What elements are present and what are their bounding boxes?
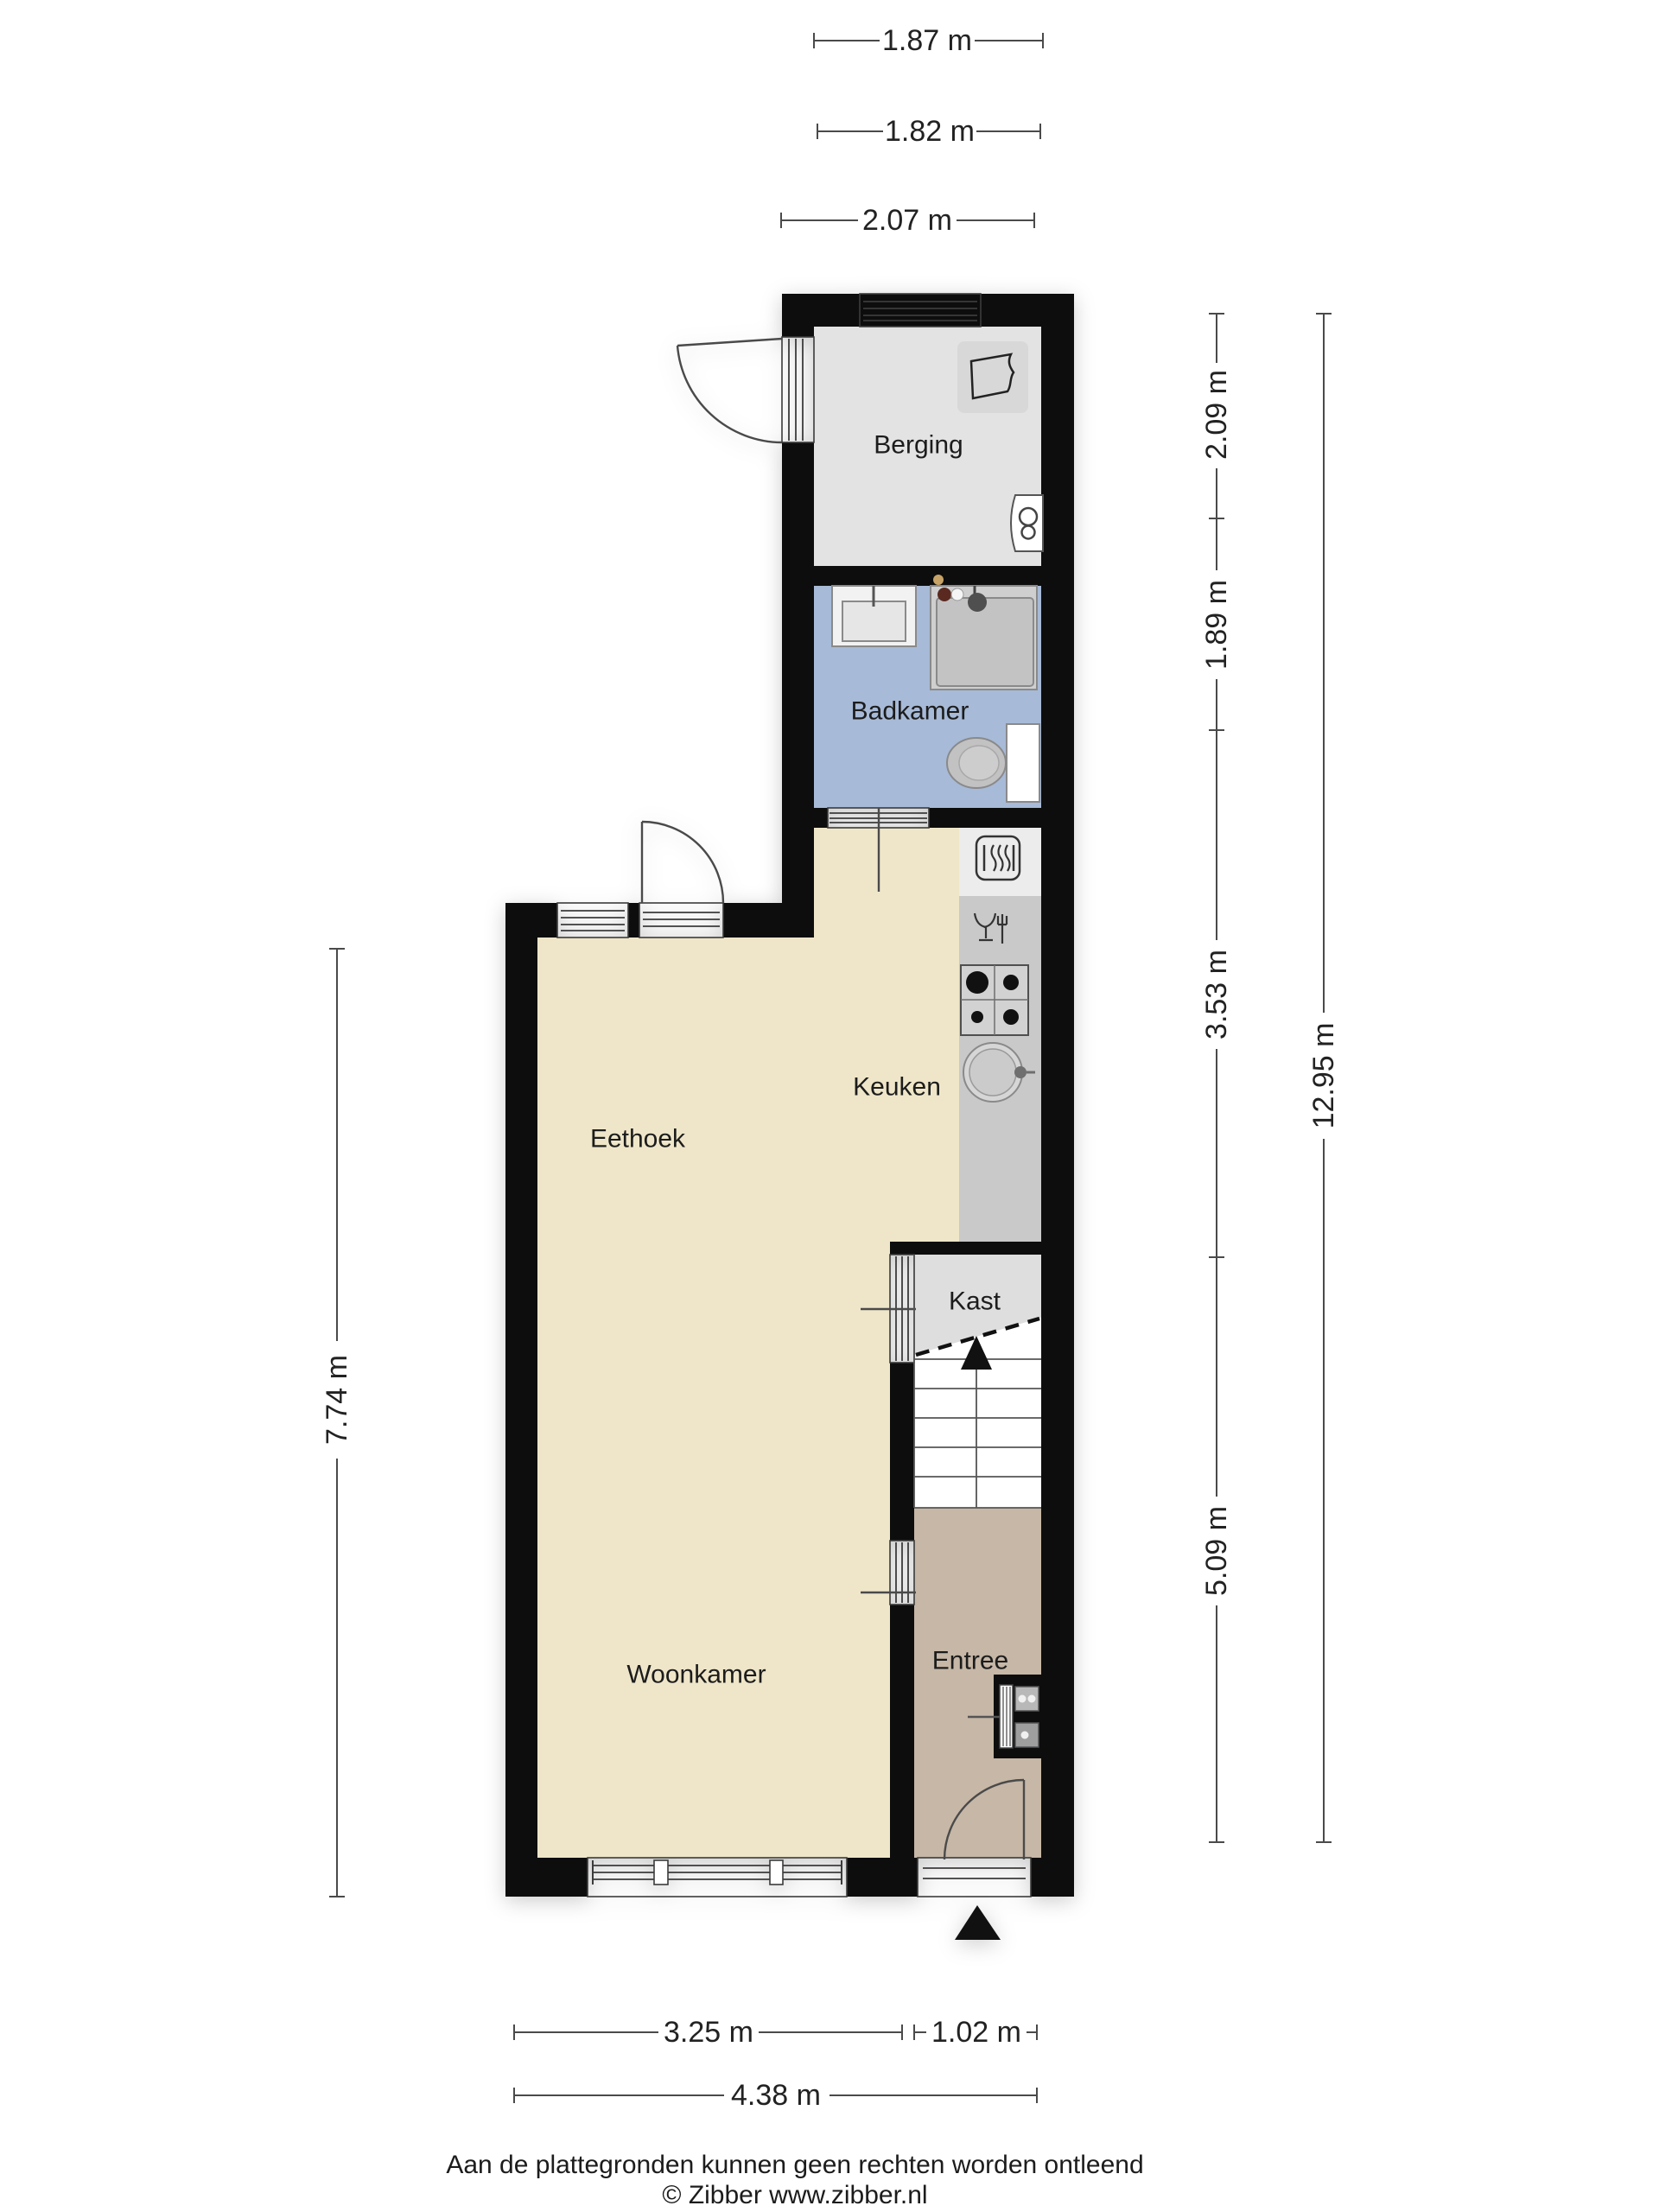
woonkamer-window: [588, 1858, 847, 1897]
room-label-eethoek: Eethoek: [590, 1125, 686, 1154]
dim-label: 4.38 m: [731, 2079, 821, 2112]
room-label-kast: Kast: [949, 1287, 1001, 1316]
garden-door: [639, 822, 723, 938]
kitchen-counter-top-section: [959, 828, 1041, 896]
footer: Aan de plattegronden kunnen geen rechten…: [446, 2151, 1143, 2209]
dim-bottom-1: 3.25 m: [514, 2016, 902, 2049]
room-label-entree: Entree: [932, 1647, 1008, 1675]
footer-credit: © Zibber www.zibber.nl: [662, 2181, 927, 2209]
footer-disclaimer: Aan de plattegronden kunnen geen rechten…: [446, 2151, 1143, 2179]
dim-label: 7.74 m: [321, 1355, 353, 1445]
dim-label: 5.09 m: [1200, 1506, 1233, 1596]
washbasin-icon: [832, 586, 916, 646]
dim-label: 2.09 m: [1200, 370, 1233, 460]
dim-top-3: 2.07 m: [781, 204, 1034, 237]
shower-icon: [931, 575, 1037, 690]
floorplan-canvas: Berging Badkamer Keuken Eethoek Woonkame…: [0, 0, 1659, 2212]
dim-top-2: 1.82 m: [817, 115, 1040, 148]
berging-door: [677, 337, 814, 442]
room-label-woonkamer: Woonkamer: [626, 1661, 766, 1689]
door-swing-arc: [677, 346, 782, 442]
eethoek-window: [557, 903, 628, 938]
dim-label: 3.53 m: [1200, 950, 1233, 1039]
dim-label: 12.95 m: [1307, 1023, 1340, 1129]
dim-right-segments: 2.09 m 1.89 m 3.53 m 5.09 m: [1200, 314, 1233, 1842]
dim-left: 7.74 m: [321, 949, 353, 1897]
dim-top-1: 1.87 m: [814, 24, 1043, 57]
laundry-basket-icon: [957, 341, 1028, 413]
building: Berging Badkamer Keuken Eethoek Woonkame…: [505, 294, 1074, 1940]
dim-label: 2.07 m: [862, 204, 952, 237]
dim-label: 1.87 m: [882, 24, 972, 57]
door-swing-arc: [642, 822, 723, 903]
dim-right-total: 12.95 m: [1307, 314, 1340, 1842]
room-label-berging: Berging: [874, 431, 963, 460]
boiler-icon: [1011, 495, 1043, 551]
dim-label: 1.02 m: [931, 2016, 1021, 2049]
entrance-arrow-icon: [955, 1905, 1001, 1940]
dim-label: 1.82 m: [885, 115, 975, 148]
stove-icon: [961, 965, 1028, 1035]
dim-label: 1.89 m: [1200, 580, 1233, 670]
room-label-badkamer: Badkamer: [851, 697, 969, 726]
dim-label: 3.25 m: [664, 2016, 753, 2049]
dim-bottom-total: 4.38 m: [514, 2079, 1037, 2112]
dim-bottom-2: 1.02 m: [914, 2016, 1037, 2049]
room-label-keuken: Keuken: [853, 1073, 941, 1102]
